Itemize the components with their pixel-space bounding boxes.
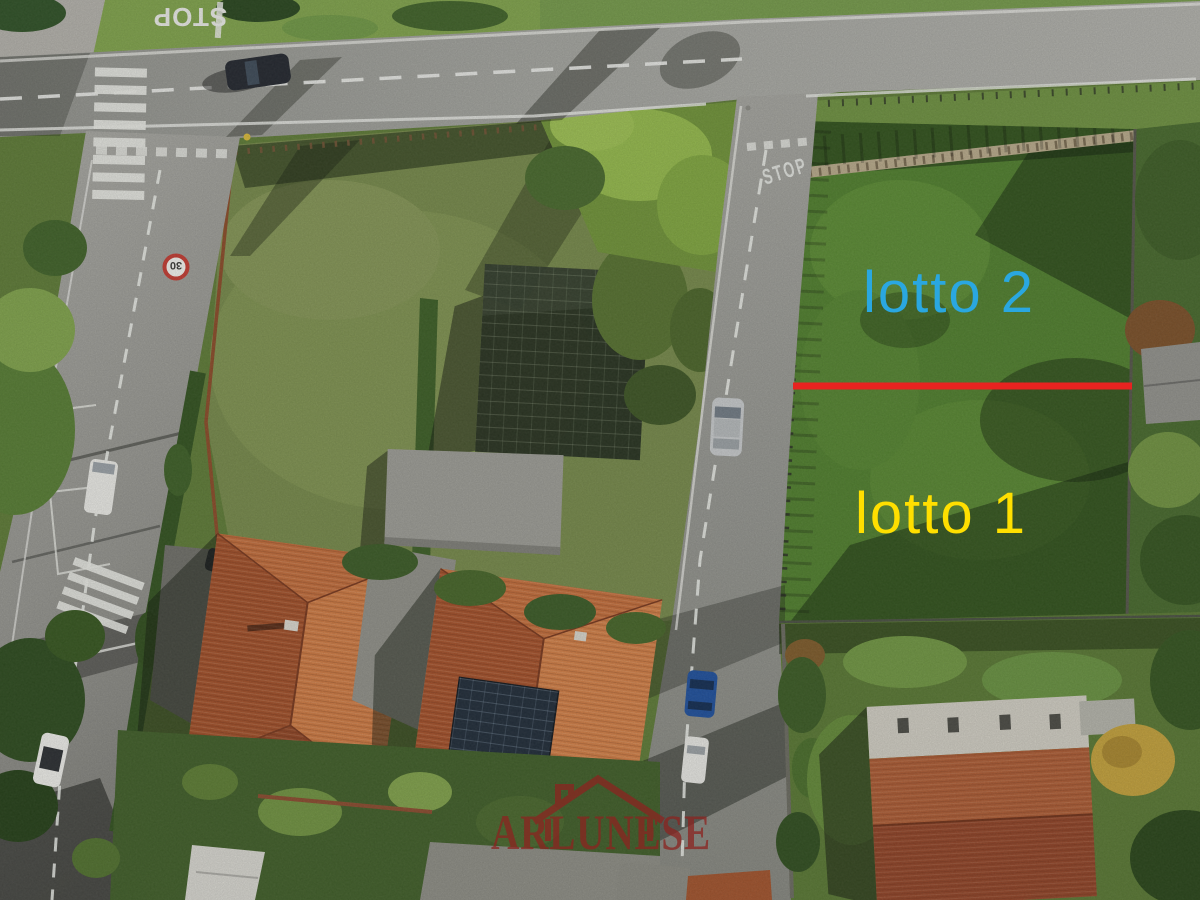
watermark-text: ARLUNESE (491, 804, 711, 860)
lot2-label: lotto 2 (863, 260, 1035, 325)
lot1-label: lotto 1 (855, 481, 1027, 546)
grain-light (0, 0, 1200, 900)
aerial-scene: STOP STOP 30 (0, 0, 1200, 900)
aerial-listing-photo: STOP STOP 30 (0, 0, 1200, 900)
